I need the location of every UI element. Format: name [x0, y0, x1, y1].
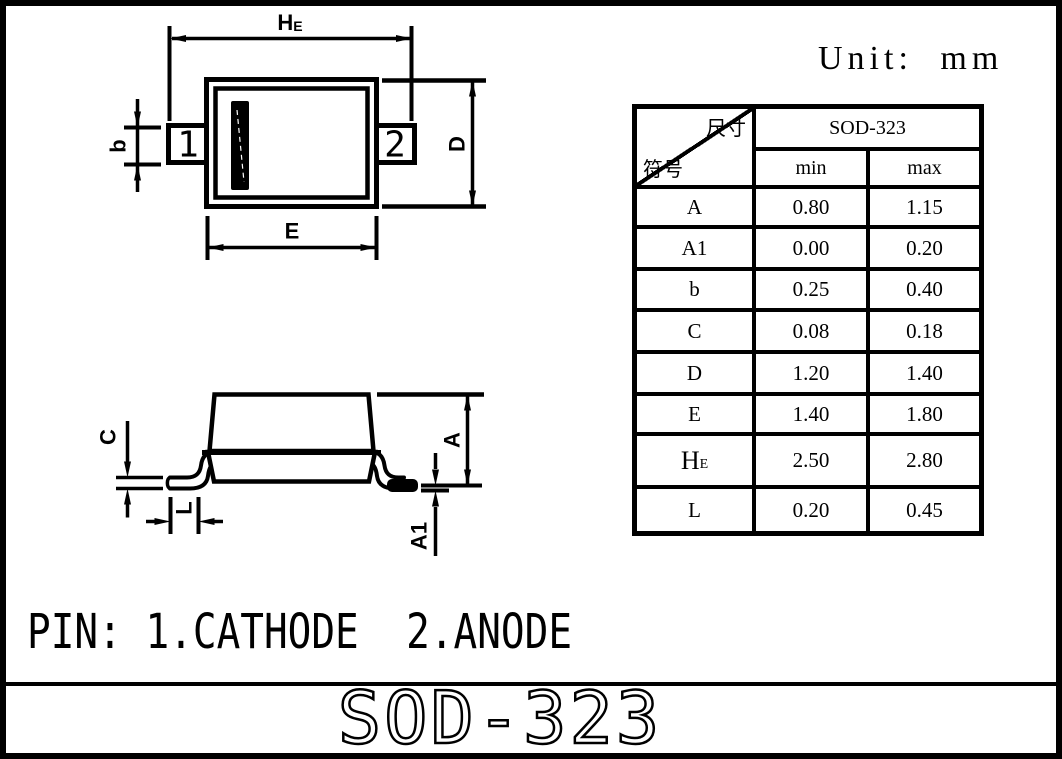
cathode-band — [231, 101, 249, 190]
table-row-symbol: HE — [637, 436, 752, 485]
pin1-number: 1 — [177, 125, 199, 166]
datasheet-page: Unit: mm HE 1 2 — [0, 0, 1062, 759]
corner-label-symbol: 符号 — [643, 153, 683, 182]
table-row-symbol: E — [637, 396, 752, 432]
table-row-max: 0.40 — [870, 271, 979, 308]
package-drawings: HE 1 2 — [6, 6, 636, 686]
pin-note: PIN: 1.CATHODE 2.ANODE — [27, 604, 572, 660]
e-dimension: E — [208, 216, 377, 260]
unit-label: Unit: mm — [818, 39, 1038, 79]
table-row-symbol: C — [637, 312, 752, 350]
b-label: b — [106, 139, 131, 152]
table-row-symbol: A — [637, 189, 752, 225]
footer-title: SOD-323 — [338, 686, 662, 753]
table-package-header: SOD-323 — [756, 109, 979, 147]
package-body-side-view — [202, 395, 381, 482]
table-row-min: 2.50 — [756, 436, 866, 485]
l-label: L — [172, 501, 197, 514]
table-row-min: 1.20 — [756, 354, 866, 392]
table-row-max: 2.80 — [870, 436, 979, 485]
footer-banner: SOD-323 — [6, 682, 1056, 753]
d-label: D — [445, 136, 470, 152]
top-view: HE 1 2 — [106, 10, 487, 261]
c-label: C — [96, 429, 121, 445]
package-body-top-view — [207, 80, 377, 207]
table-row-min: 1.40 — [756, 396, 866, 432]
table-row-min: 0.00 — [756, 229, 866, 267]
table-row-max: 1.80 — [870, 396, 979, 432]
table-row-min: 0.20 — [756, 489, 866, 531]
dimension-table: 尺寸 符号 SOD-323 min max A 0.80 1.15 A1 0.0… — [632, 104, 984, 536]
table-min-header: min — [756, 151, 866, 185]
table-row-min: 0.80 — [756, 189, 866, 225]
l-dimension: L — [146, 497, 223, 534]
table-max-header: max — [870, 151, 979, 185]
e-label: E — [285, 219, 300, 244]
table-row-max: 1.15 — [870, 189, 979, 225]
he-label: HE — [277, 10, 302, 35]
right-foot-pad — [387, 479, 418, 492]
table-row-symbol: D — [637, 354, 752, 392]
a1-dimension: A1 — [407, 453, 440, 556]
side-view: C L A — [96, 395, 485, 557]
a-label: A — [440, 432, 465, 448]
a1-label: A1 — [407, 522, 432, 550]
table-row-max: 0.20 — [870, 229, 979, 267]
c-dimension: C — [96, 421, 164, 518]
table-row-min: 0.08 — [756, 312, 866, 350]
table-row-max: 0.18 — [870, 312, 979, 350]
corner-label-dimension: 尺寸 — [706, 112, 746, 141]
table-row-max: 1.40 — [870, 354, 979, 392]
table-row-max: 0.45 — [870, 489, 979, 531]
table-row-symbol: b — [637, 271, 752, 308]
table-corner-cell: 尺寸 符号 — [637, 109, 752, 185]
table-row-symbol: L — [637, 489, 752, 531]
pin2-number: 2 — [384, 125, 406, 166]
table-row-min: 0.25 — [756, 271, 866, 308]
table-row-symbol: A1 — [637, 229, 752, 267]
footer-title-svg: SOD-323 — [6, 686, 1056, 753]
b-dimension: b — [106, 99, 162, 192]
